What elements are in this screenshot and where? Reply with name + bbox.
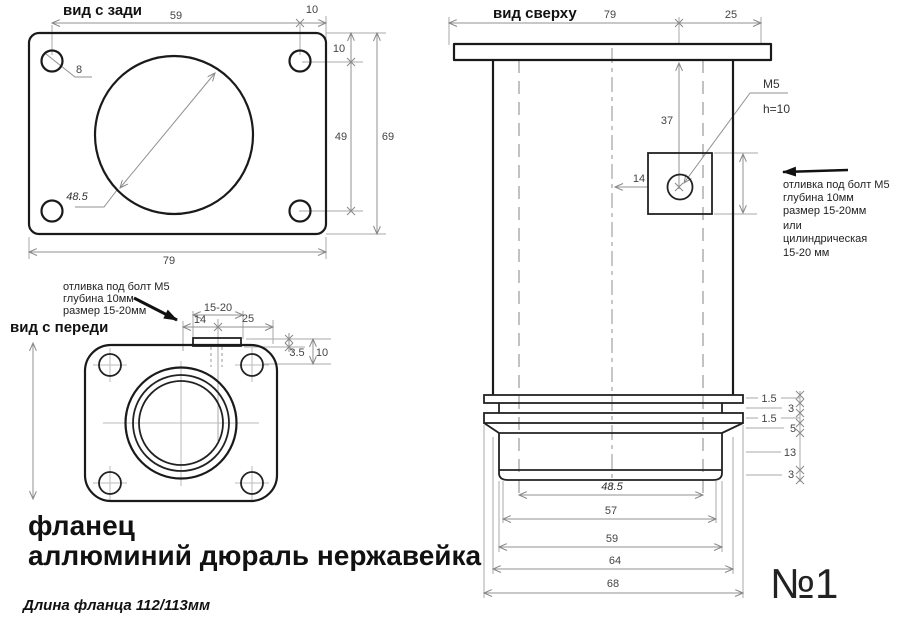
length-note: Длина фланца 112/113мм (21, 597, 210, 614)
dim-height: 69 (382, 131, 394, 143)
part-name: фланец (28, 510, 135, 541)
dim-tab-height: 3.5 (289, 347, 304, 359)
top-view-title: вид сверху (493, 5, 577, 22)
top-note-line3: размер 15-20мм (783, 205, 866, 217)
width-dim-5: 68 (607, 578, 619, 590)
front-view-title: вид с переди (10, 319, 108, 336)
thread-depth-label: h=10 (763, 102, 790, 116)
front-note-line1: отливка под болт М5 (63, 281, 170, 293)
top-view: вид сверху 79 25 37 14 М5 h=10 отливка п… (449, 5, 890, 598)
top-note-line6: 15-20 мм (783, 247, 829, 259)
top-note-line4: или (783, 220, 802, 232)
stack-dim-1: 1.5 (761, 393, 776, 405)
dim-edge-right: 10 (306, 4, 318, 16)
hole-dia-leader (46, 54, 92, 77)
rear-view-title: вид с зади (63, 2, 142, 19)
top-note-line5: цилиндрическая (783, 233, 867, 245)
width-dim-4: 64 (609, 555, 621, 567)
dim-slot-range: 15-20 (204, 302, 232, 314)
rear-view: вид с зади 59 10 8 48.5 10 49 69 79 (29, 2, 394, 267)
dim-boss-from-center: 14 (633, 173, 645, 185)
rear-plate-outline (29, 33, 326, 234)
dim-tab-depth: 10 (316, 347, 328, 359)
bolt-hole (42, 201, 63, 222)
top-note-line2: глубина 10мм (783, 192, 854, 204)
dim-slot-right: 25 (242, 313, 254, 325)
materials: аллюминий дюраль нержавейка (28, 540, 482, 571)
stack-dim-6: 3 (788, 469, 794, 481)
dim-edge-top: 10 (333, 43, 345, 55)
stack-dim-5: 13 (784, 447, 796, 459)
dim-flange-right: 25 (725, 9, 737, 21)
dim-slot-left: 14 (194, 314, 206, 326)
ring-1 (484, 395, 743, 403)
dim-bore-dia: 48.5 (66, 191, 88, 203)
flange-drawing: вид с зади 59 10 8 48.5 10 49 69 79 (0, 0, 913, 632)
rear-view-dimension-lines (29, 19, 377, 252)
width-dim-1: 48.5 (601, 481, 623, 493)
rear-view-outline (29, 33, 326, 234)
bore-diameter-arrow (120, 73, 215, 188)
boss-hole (668, 175, 693, 200)
thread-label: М5 (763, 77, 780, 91)
dim-hole-dia: 8 (76, 64, 82, 76)
front-note-line2: глубина 10мм (63, 293, 134, 305)
top-note-line1: отливка под болт М5 (783, 179, 890, 191)
stack-dim-4: 5 (790, 423, 796, 435)
dim-hole-spacing-v: 49 (335, 131, 347, 143)
top-view-extension-lines (449, 17, 804, 598)
front-note-line3: размер 15-20мм (63, 305, 146, 317)
thread-leader-diag (684, 93, 750, 183)
dim-boss-from-top: 37 (661, 115, 673, 127)
dim-hole-spacing-h: 59 (170, 10, 182, 22)
sheet-number: №1 (770, 560, 838, 607)
dim-width: 79 (163, 255, 175, 267)
stack-dim-3: 1.5 (761, 413, 776, 425)
rear-bore-circle (95, 56, 253, 214)
dim-body-width: 79 (604, 9, 616, 21)
front-view: вид с переди отливка под болт М5 глубина… (10, 281, 331, 501)
bottom-lip (499, 470, 722, 480)
stack-dim-2: 3 (788, 403, 794, 415)
footer: фланец аллюминий дюраль нержавейка Длина… (21, 510, 838, 614)
boss-square (648, 153, 712, 214)
ring-2 (484, 413, 743, 423)
casting-note-arrow-right (783, 170, 848, 172)
width-dim-2: 57 (605, 505, 617, 517)
width-dim-3: 59 (606, 533, 618, 545)
drawing-sheet: вид с зади 59 10 8 48.5 10 49 69 79 (0, 0, 913, 632)
